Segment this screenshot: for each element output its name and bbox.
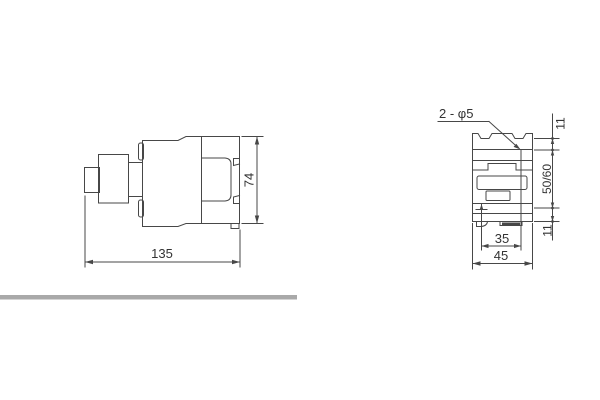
front-label-plate — [477, 176, 527, 190]
arrowhead-74-bottom — [255, 216, 259, 224]
arrowhead-chain — [551, 150, 554, 156]
dim-35-label: 35 — [495, 231, 509, 246]
arrowhead-35-right — [514, 244, 521, 248]
dim-50-60-label: 50/60 — [540, 164, 554, 194]
arrowhead-chain — [551, 203, 554, 209]
side-rail-notch-top — [234, 159, 240, 166]
technical-drawing: 135 74 2 - φ5 — [0, 0, 600, 400]
front-bottom-tab-fill — [502, 223, 520, 226]
dim-74-label: 74 — [242, 173, 257, 187]
front-view-dimensions: 2 - φ5 11 50/60 11 35 45 — [438, 106, 568, 269]
side-view — [85, 137, 240, 229]
side-cap-block — [85, 168, 100, 193]
side-view-dimensions: 135 74 — [85, 137, 263, 268]
arrowhead-45-left — [473, 261, 481, 266]
front-raised-step — [473, 164, 533, 171]
hole-bottom-left-marker — [480, 204, 484, 210]
side-neck — [129, 163, 143, 197]
front-small-plate — [486, 191, 510, 201]
dim-11-top-label: 11 — [554, 117, 568, 130]
side-foot — [231, 224, 239, 229]
arrowhead-45-right — [525, 261, 533, 266]
dim-45-label: 45 — [494, 248, 508, 263]
side-body-outline — [143, 137, 240, 227]
dim-11-bottom-label: 11 — [541, 224, 555, 237]
arrowhead-35-left — [482, 244, 489, 248]
leader-line — [489, 122, 518, 148]
arrowhead-chain — [551, 216, 554, 222]
bottom-divider-bar — [0, 295, 297, 300]
arrowhead-135-right — [232, 260, 240, 265]
side-rail-notch-bottom — [234, 196, 240, 204]
arrowhead-74-top — [255, 137, 259, 145]
arrowhead-chain — [551, 139, 554, 145]
side-back-recess — [202, 158, 232, 201]
hole-callout-label: 2 - φ5 — [439, 106, 473, 121]
dim-135-label: 135 — [151, 246, 173, 261]
side-terminal-block — [99, 155, 129, 204]
arrowhead-135-left — [85, 260, 93, 265]
